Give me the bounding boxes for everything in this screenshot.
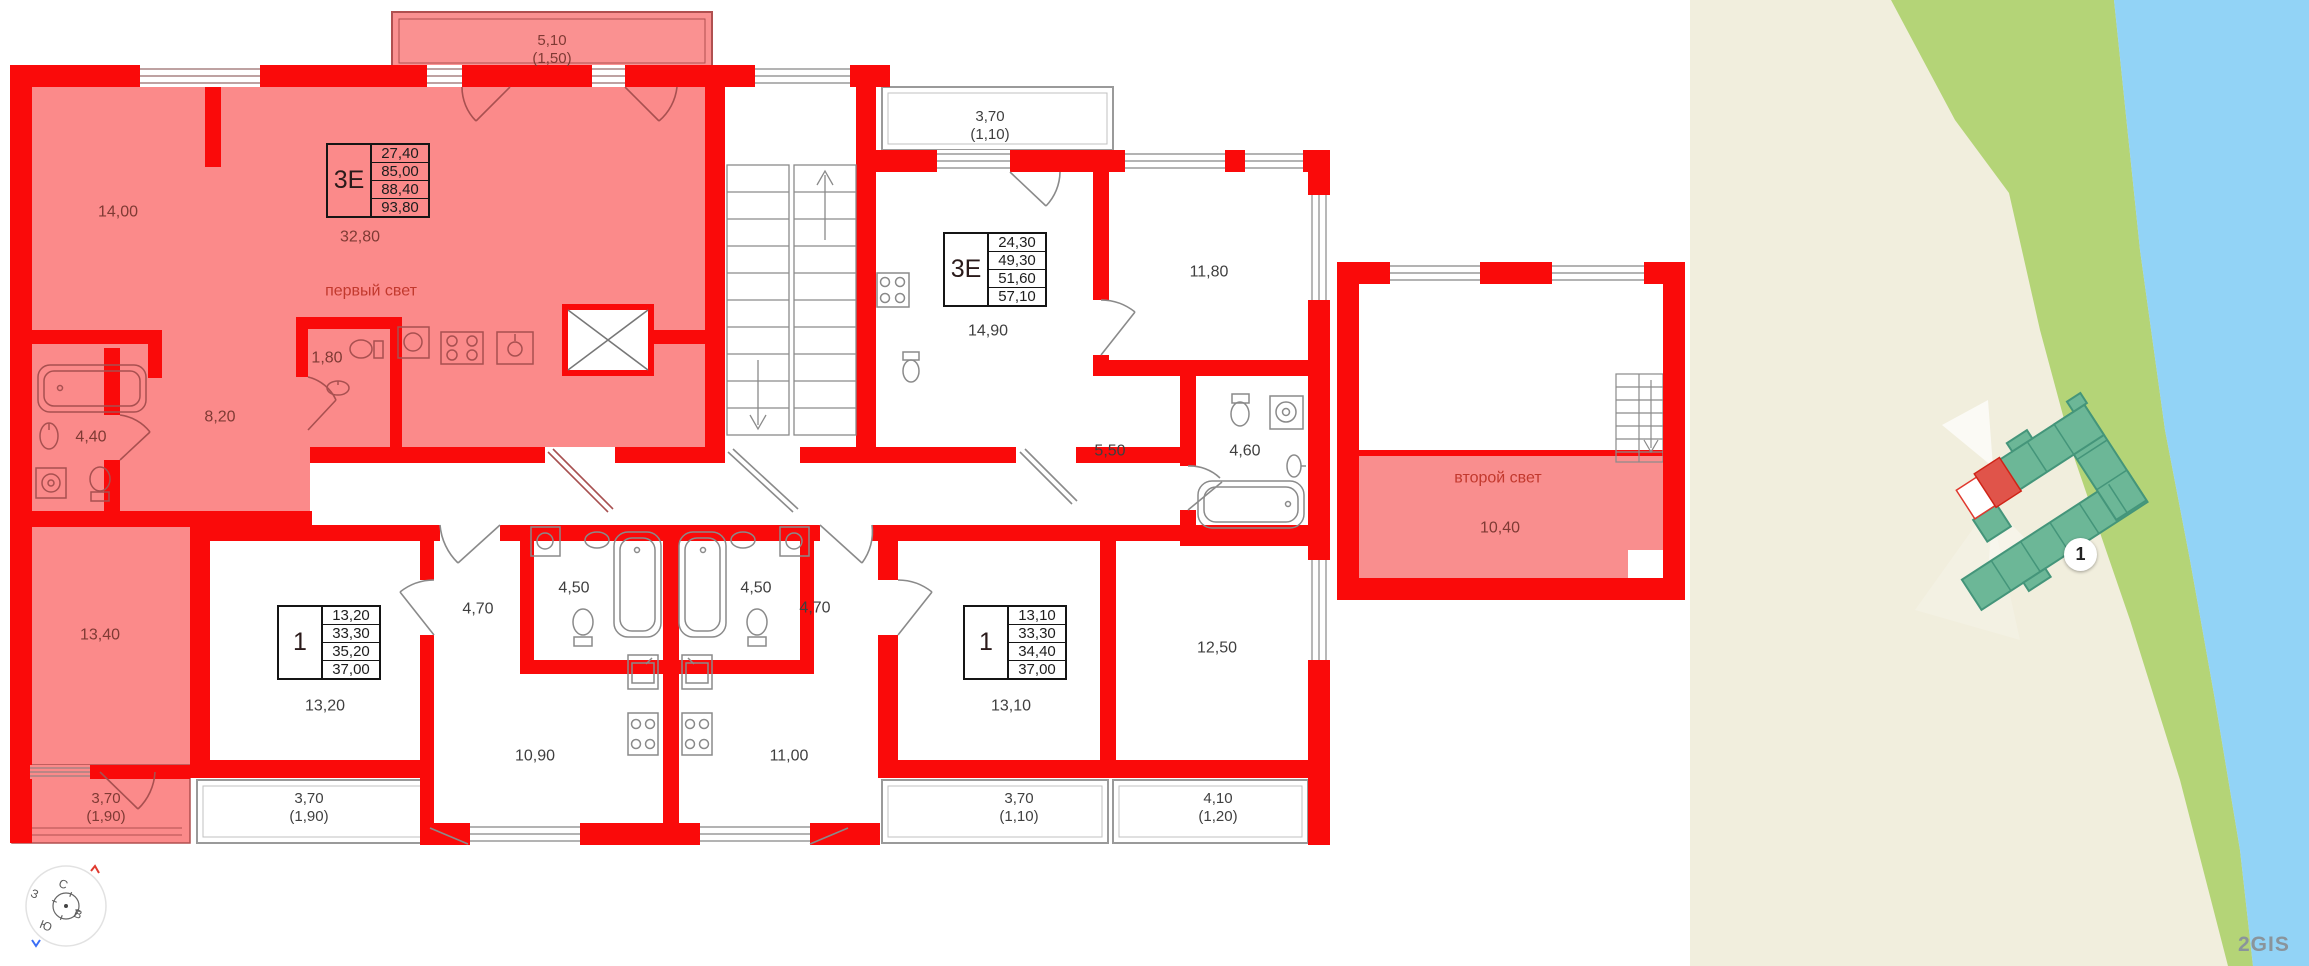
balcony-label-bottom-left-inner: 3,70(1,90) [86, 790, 125, 826]
wall [190, 511, 210, 765]
wall [195, 525, 440, 541]
wall [876, 447, 1016, 463]
room-label-4-70-left: 4,70 [462, 600, 493, 619]
balcony [882, 780, 1108, 843]
room-label-8-20: 8,20 [204, 408, 235, 427]
room-label-11-00: 11,00 [770, 747, 809, 766]
apartment-type: 3Е [945, 234, 989, 305]
wall [878, 635, 898, 762]
balcony-label-bottom-left-outer: 3,70(1,90) [289, 790, 328, 826]
wall [856, 87, 876, 463]
apartment-area-value: 24,30 [989, 234, 1045, 252]
floorplan: С З В Ю [0, 0, 1690, 966]
apartment-area-value: 34,40 [1009, 643, 1065, 661]
apartment-area-value: 13,20 [323, 607, 379, 625]
apartment-area-value: 37,00 [323, 661, 379, 678]
wall [104, 348, 120, 415]
apartment-area-value: 37,00 [1009, 661, 1065, 678]
elevator [565, 307, 651, 373]
wall [310, 447, 545, 463]
room-label-14-00: 14,00 [98, 203, 138, 222]
room-label-4-60: 4,60 [1229, 442, 1260, 461]
apartment-area-value: 49,30 [989, 252, 1045, 270]
apartment-table-3e-left[interactable]: 3Е 27,40 85,00 88,40 93,80 [326, 143, 430, 218]
minimap[interactable] [1690, 0, 2309, 966]
wall [1093, 172, 1109, 300]
wall [190, 760, 430, 778]
room-label-14-90: 14,90 [968, 322, 1008, 341]
wall [296, 317, 396, 329]
first-light-label: первый свет [325, 282, 417, 301]
room-label-5-50: 5,50 [1094, 442, 1125, 461]
apartment-area-value: 13,10 [1009, 607, 1065, 625]
wall [878, 541, 898, 580]
apartment-area-value: 88,40 [372, 181, 428, 199]
balcony-label-bottom-right-inner: 3,70(1,10) [999, 790, 1038, 826]
apartment-area-value: 27,40 [372, 145, 428, 163]
room-label-4-40: 4,40 [75, 428, 106, 447]
room-label-10-90: 10,90 [515, 747, 555, 766]
wall [1076, 447, 1180, 463]
balcony-label-top-right: 3,70(1,10) [970, 108, 1009, 144]
wall [205, 87, 221, 167]
room-label-10-40: 10,40 [1480, 519, 1520, 538]
apartment-area-value: 57,10 [989, 288, 1045, 305]
wall [1093, 360, 1330, 376]
map-entrance-badge[interactable]: 1 [2064, 538, 2097, 571]
apartment-table-1-right[interactable]: 1 13,10 33,30 34,40 37,00 [963, 605, 1067, 680]
wall [390, 317, 402, 447]
wall [1663, 262, 1685, 600]
wall [663, 541, 679, 845]
room-label-11-80: 11,80 [1190, 263, 1229, 282]
wall [420, 541, 434, 580]
wall [148, 330, 162, 378]
wall [32, 330, 160, 344]
wall [1100, 541, 1116, 762]
room-label-13-40: 13,40 [80, 626, 120, 645]
apartment-type: 1 [279, 607, 323, 678]
wall [1180, 530, 1308, 546]
wall [1337, 262, 1359, 600]
apartment-area-value: 33,30 [323, 625, 379, 643]
room-label-12-50: 12,50 [1197, 639, 1237, 658]
room-label-13-20: 13,20 [305, 697, 345, 716]
wall [679, 660, 814, 674]
wall [520, 541, 534, 660]
room-label-4-70-right: 4,70 [799, 599, 830, 618]
wall [1337, 578, 1685, 600]
apartment-area-value: 85,00 [372, 163, 428, 181]
apartment-type: 3Е [328, 145, 372, 216]
wall [296, 317, 308, 377]
room-label-13-10: 13,10 [991, 697, 1031, 716]
wall [1180, 376, 1196, 466]
apartment-area-value: 33,30 [1009, 625, 1065, 643]
room-label-4-50-right: 4,50 [740, 579, 771, 598]
apartment-table-1-left[interactable]: 1 13,20 33,30 35,20 37,00 [277, 605, 381, 680]
wall [10, 65, 32, 843]
wall [420, 635, 434, 825]
gis-watermark: 2GIS [2238, 933, 2290, 957]
apartment-area-value: 35,20 [323, 643, 379, 661]
wall [878, 760, 1308, 778]
room-label-4-50-left: 4,50 [558, 579, 589, 598]
wall [615, 447, 705, 463]
second-light-label: второй свет [1454, 469, 1541, 488]
wall [650, 330, 708, 344]
wall [705, 87, 725, 463]
balcony-label-bottom-right-outer: 4,10(1,20) [1198, 790, 1237, 826]
apartment-area-value: 51,60 [989, 270, 1045, 288]
apartment-area-value: 93,80 [372, 199, 428, 216]
balcony-label-top: 5,10(1,50) [532, 32, 571, 68]
duplex-block[interactable] [1337, 262, 1685, 600]
apartment-table-3e-right[interactable]: 3Е 24,30 49,30 51,60 57,10 [943, 232, 1047, 307]
room-label-1-80: 1,80 [311, 349, 342, 368]
floorplan-viewer: С З В Ю 5,10(1,50) 3, [0, 0, 2309, 966]
room-label-32-80: 32,80 [340, 228, 380, 247]
duplex-notch [1628, 550, 1663, 578]
wall [1359, 450, 1663, 456]
wall [22, 511, 312, 527]
apartment-type: 1 [965, 607, 1009, 678]
wall [800, 447, 856, 463]
